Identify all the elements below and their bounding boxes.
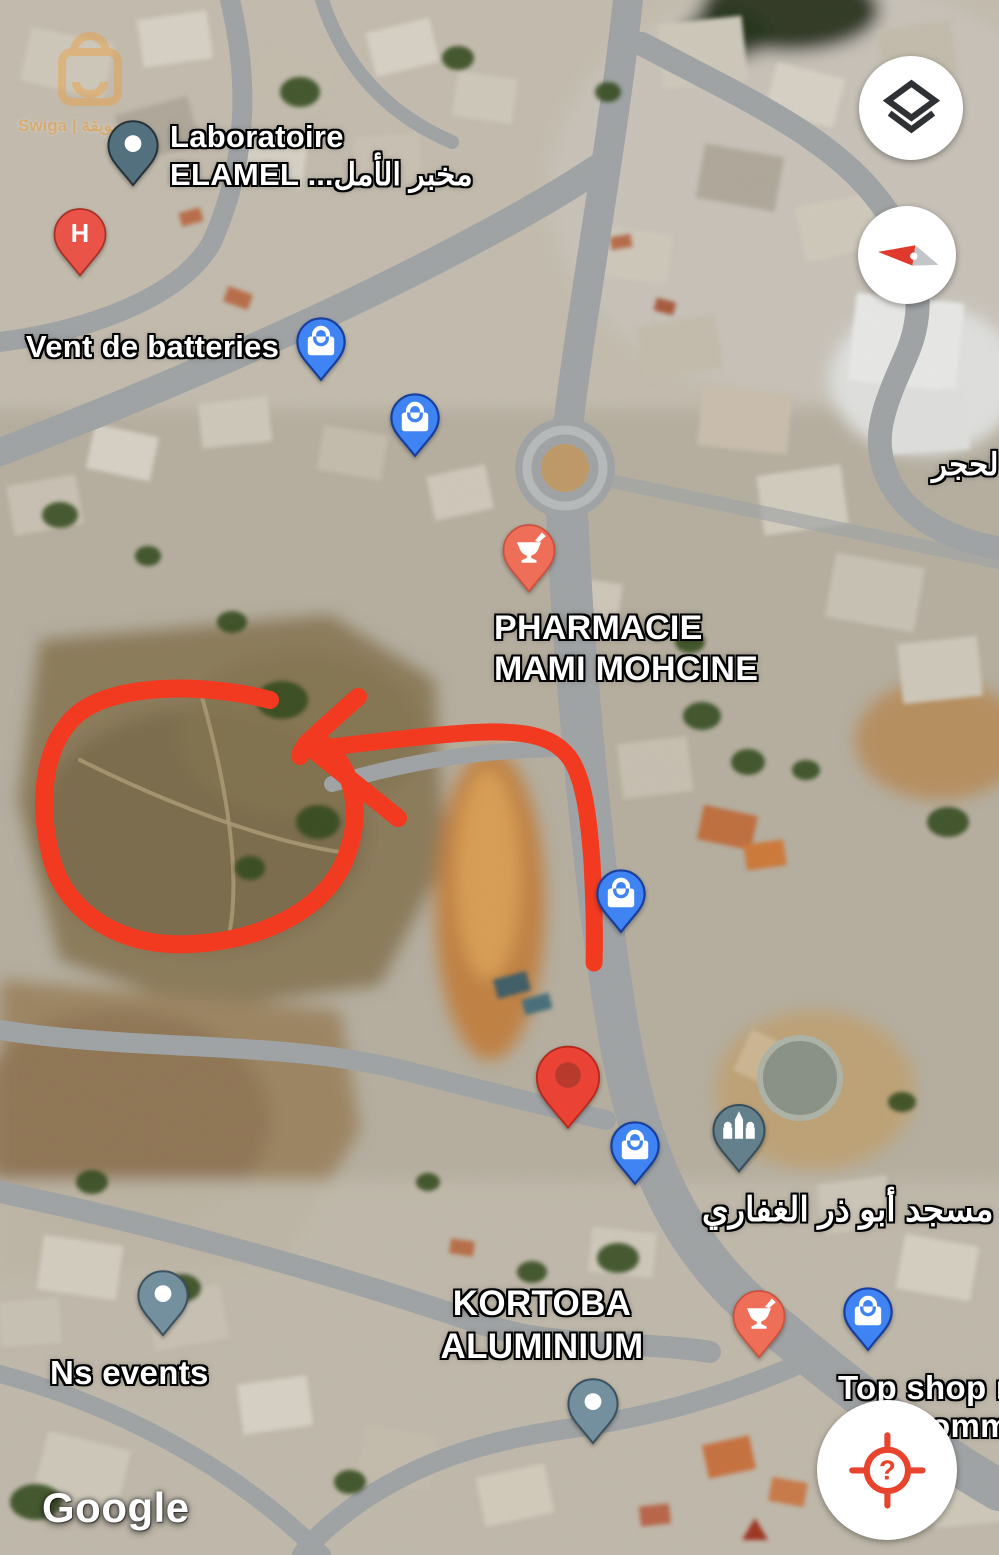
- dot-icon: [155, 1285, 172, 1302]
- google-logo: Google: [42, 1484, 190, 1532]
- shopping-bag-pin[interactable]: [596, 868, 646, 934]
- google-maps-satellite-view[interactable]: Swiga | سويقة Laboratoire ELAMEL مخبر ال…: [0, 0, 999, 1555]
- laboratory-dot-pin[interactable]: [107, 118, 159, 188]
- dot-icon: [125, 135, 142, 152]
- label-laboratoire-line2: ELAMEL: [170, 157, 299, 192]
- question-mark-glyph: ?: [879, 1454, 896, 1485]
- pin-inner-dot: [555, 1062, 581, 1088]
- my-location-crosshair-icon: ?: [837, 1420, 938, 1521]
- layers-icon: [874, 71, 949, 146]
- shopping-bag-pin[interactable]: [610, 1120, 660, 1186]
- dropped-red-pin[interactable]: [535, 1044, 601, 1130]
- label-hajar-partial: لحجر: [932, 446, 999, 484]
- watermark-bag-icon: [14, 24, 134, 119]
- label-ns-events: Ns events: [50, 1353, 209, 1393]
- label-kortoba: KORTOBA ALUMINIUM: [432, 1283, 652, 1368]
- place-dot-pin[interactable]: [567, 1376, 619, 1446]
- pharmacy-mortar-pin[interactable]: [732, 1288, 786, 1360]
- compass-needle-icon: [872, 220, 943, 291]
- shopping-bag-pin[interactable]: [296, 316, 346, 382]
- label-kortoba-line2: ALUMINIUM: [441, 1327, 644, 1366]
- label-mosque: مسجد أبو ذر الغفاري: [702, 1190, 994, 1231]
- label-pharmacie-line2: MAMI MOHCINE: [494, 650, 758, 688]
- shopping-bag-pin[interactable]: [390, 392, 440, 458]
- label-pharmacie-line1: PHARMACIE: [494, 609, 703, 647]
- place-dot-pin[interactable]: [137, 1268, 189, 1338]
- label-top-shop-line1: Top shop m: [838, 1368, 999, 1408]
- label-pharmacie: PHARMACIE MAMI MOHCINE: [494, 608, 758, 691]
- hospital-h-pin[interactable]: H: [53, 206, 107, 278]
- compass-button[interactable]: [858, 206, 956, 304]
- my-location-button[interactable]: ?: [817, 1400, 957, 1540]
- label-vent-de-batteries: Vent de batteries: [26, 328, 279, 366]
- layers-button[interactable]: [859, 56, 963, 160]
- hospital-h-icon: H: [71, 220, 89, 248]
- label-kortoba-line1: KORTOBA: [453, 1284, 631, 1323]
- label-laboratoire: Laboratoire ELAMEL مخبر الأمل...: [170, 118, 473, 194]
- label-laboratoire-line1: Laboratoire: [170, 119, 344, 154]
- label-laboratoire-arabic: مخبر الأمل...: [308, 157, 473, 192]
- dot-icon: [585, 1393, 602, 1410]
- shopping-bag-pin[interactable]: [843, 1286, 893, 1352]
- watermark: Swiga | سويقة: [14, 24, 134, 124]
- pharmacy-mortar-pin[interactable]: [502, 522, 556, 594]
- mosque-pin[interactable]: [712, 1102, 766, 1174]
